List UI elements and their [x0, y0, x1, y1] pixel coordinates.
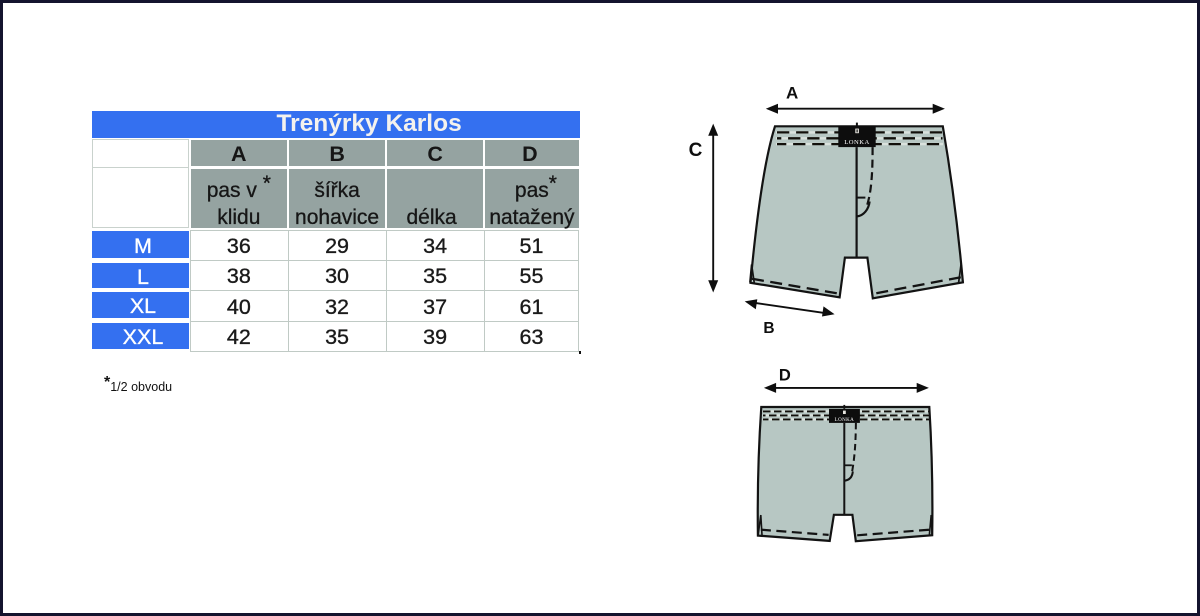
svg-text:B: B — [763, 320, 774, 337]
svg-text:C: C — [689, 140, 703, 161]
svg-text:D: D — [779, 366, 791, 384]
svg-text:LONKA: LONKA — [835, 418, 855, 423]
svg-text:A: A — [786, 84, 798, 103]
svg-text:LONKA: LONKA — [844, 139, 870, 146]
